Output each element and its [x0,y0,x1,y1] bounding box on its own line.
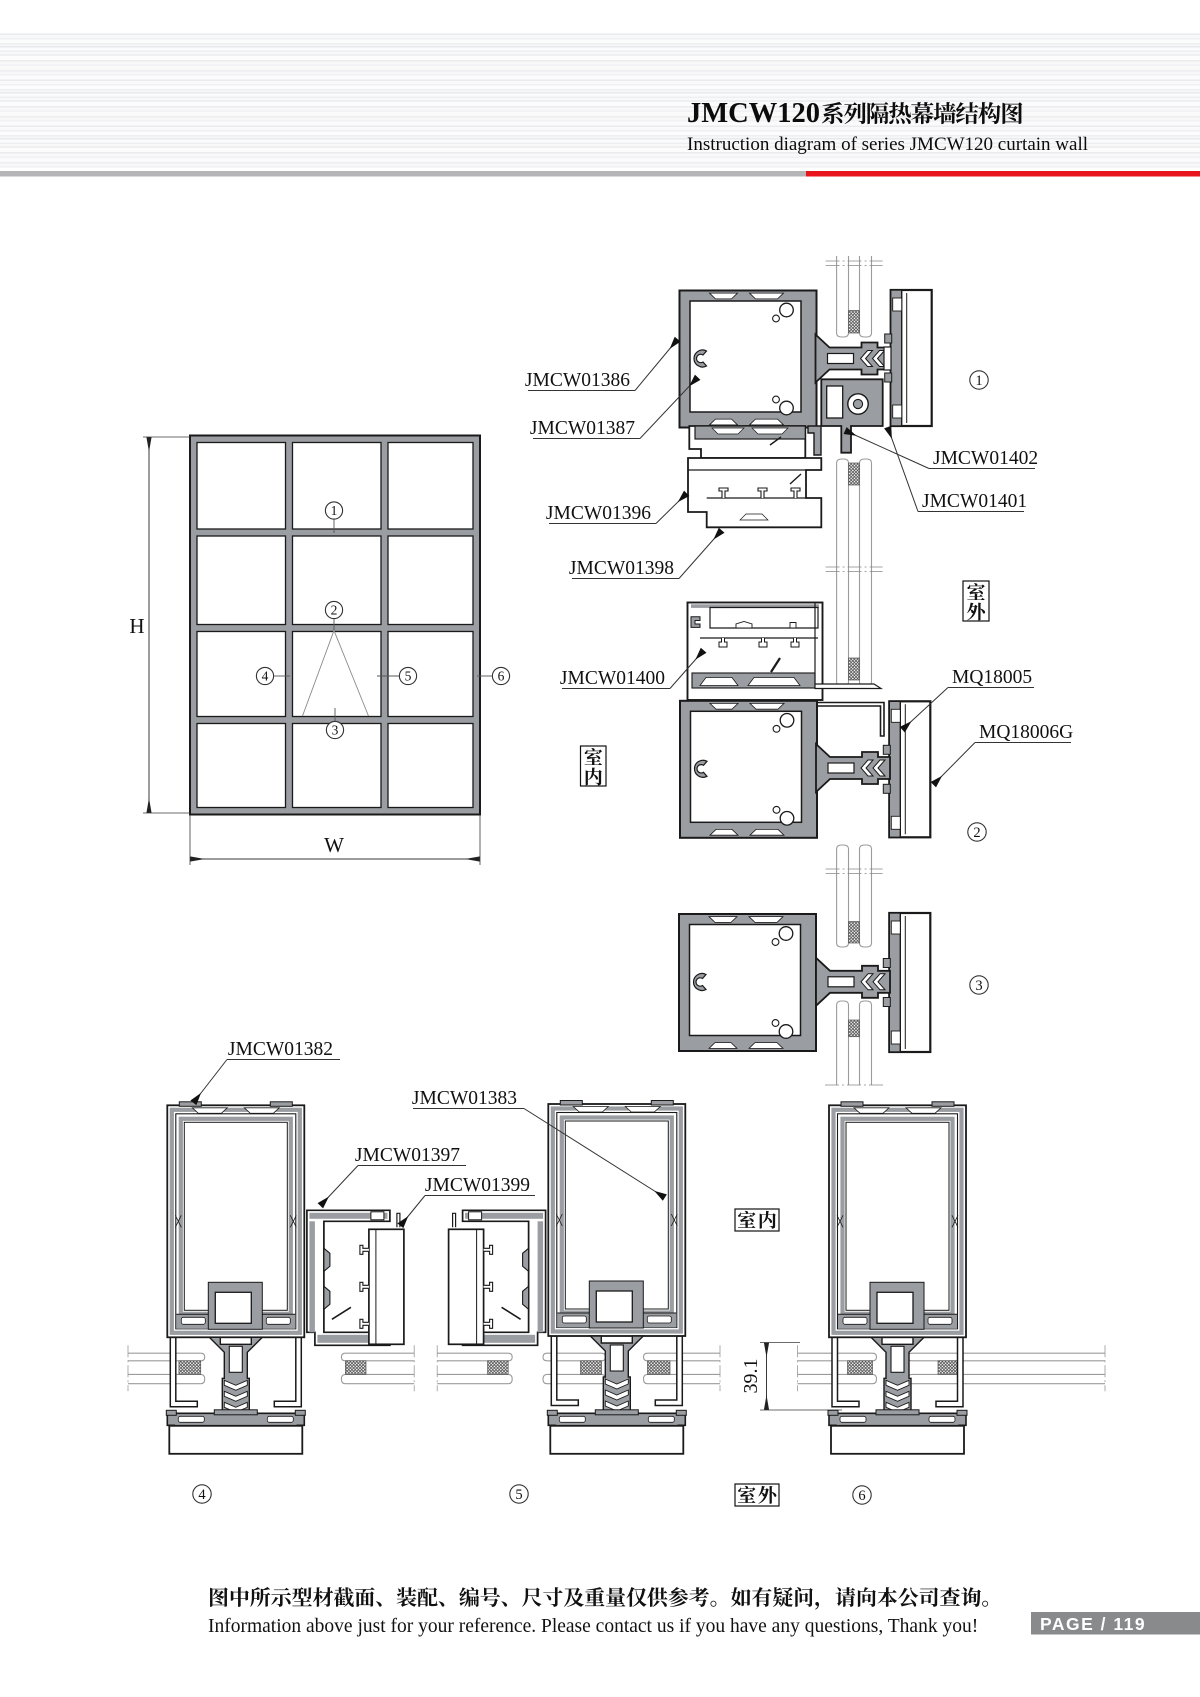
svg-text:PAGE / 119: PAGE / 119 [1040,1614,1146,1634]
svg-text:3: 3 [332,723,339,738]
svg-text:4: 4 [198,1487,206,1503]
svg-text:1: 1 [331,503,338,518]
svg-text:JMCW01401: JMCW01401 [922,491,1027,512]
svg-text:6: 6 [498,669,505,684]
svg-text:2: 2 [331,603,338,618]
svg-text:JMCW01402: JMCW01402 [933,448,1038,469]
svg-text:3: 3 [975,978,982,994]
svg-text:Instruction diagram of series: Instruction diagram of series JMCW120 cu… [687,134,1088,155]
svg-text:JMCW01386: JMCW01386 [525,370,630,391]
svg-text:H: H [129,614,144,638]
svg-text:4: 4 [262,669,269,684]
svg-text:JMCW01396: JMCW01396 [546,503,651,524]
svg-text:JMCW01383: JMCW01383 [412,1088,517,1109]
svg-text:JMCW01399: JMCW01399 [425,1175,530,1196]
svg-text:2: 2 [973,825,980,841]
svg-text:39.1: 39.1 [740,1359,762,1394]
svg-text:JMCW120: JMCW120 [687,98,820,129]
svg-text:6: 6 [858,1488,865,1504]
svg-text:JMCW01400: JMCW01400 [560,668,665,689]
svg-text:JMCW01398: JMCW01398 [569,558,674,579]
svg-text:JMCW01387: JMCW01387 [530,418,635,439]
svg-text:5: 5 [515,1487,522,1503]
svg-text:1: 1 [975,373,982,389]
svg-text:JMCW01397: JMCW01397 [355,1145,460,1166]
svg-text:Information above just for you: Information above just for your referenc… [208,1616,978,1637]
svg-text:MQ18006G: MQ18006G [979,722,1073,743]
svg-text:JMCW01382: JMCW01382 [228,1039,333,1060]
svg-text:W: W [324,833,344,857]
svg-text:MQ18005: MQ18005 [952,667,1032,688]
svg-text:5: 5 [405,669,412,684]
